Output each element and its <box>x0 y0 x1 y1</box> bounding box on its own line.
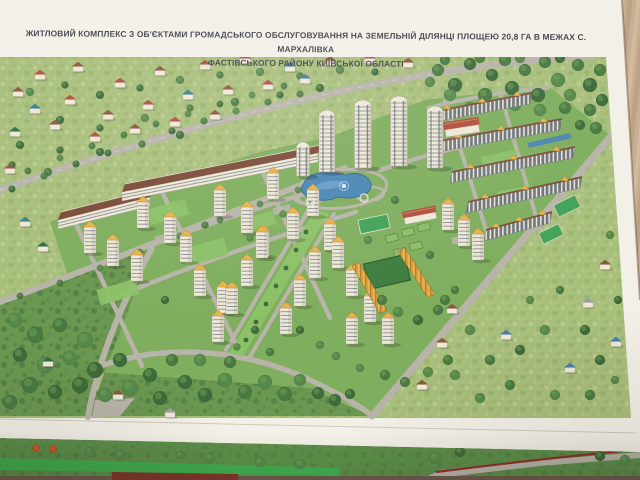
poster-title-line1: ЖИТЛОВИЙ КОМПЛЕКС З ОБ'ЄКТАМИ ГРОМАДСЬКО… <box>0 26 612 58</box>
masterplan-rendering <box>0 53 640 419</box>
fountain <box>342 184 346 188</box>
photo: ЖИТЛОВИЙ КОМПЛЕКС З ОБ'ЄКТАМИ ГРОМАДСЬКО… <box>0 0 640 480</box>
poster-photo <box>0 0 640 480</box>
poster-title: ЖИТЛОВИЙ КОМПЛЕКС З ОБ'ЄКТАМИ ГРОМАДСЬКО… <box>0 26 612 72</box>
